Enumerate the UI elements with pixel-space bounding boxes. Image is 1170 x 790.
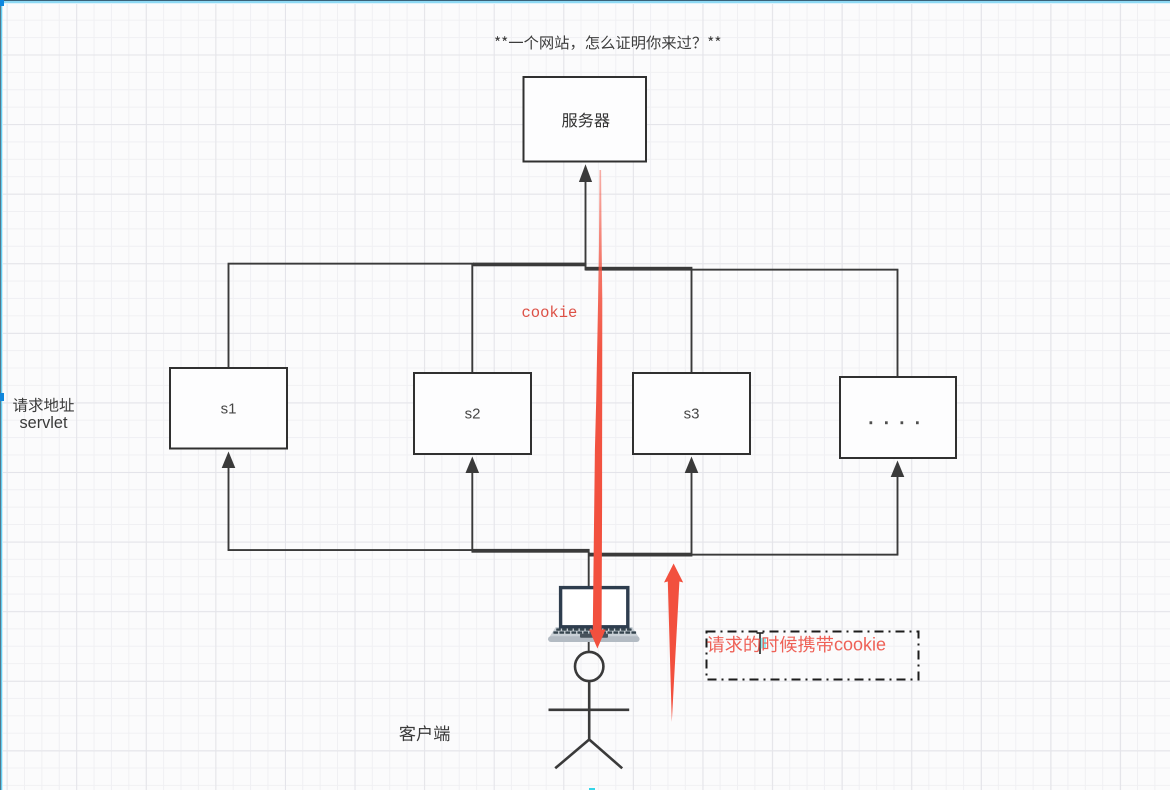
svg-text:s2: s2 <box>465 406 481 423</box>
svg-text:servlet: servlet <box>20 414 68 432</box>
svg-text:s3: s3 <box>684 406 700 423</box>
svg-text:cookie: cookie <box>522 304 578 322</box>
svg-text:s1: s1 <box>221 401 237 418</box>
svg-text:cookie: cookie <box>834 635 886 655</box>
